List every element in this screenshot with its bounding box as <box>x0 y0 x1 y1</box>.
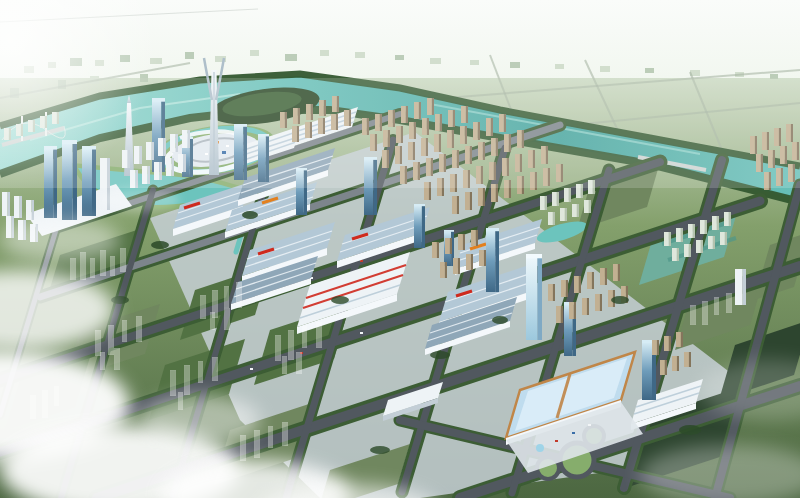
distant-building <box>285 54 297 61</box>
distant-building <box>470 60 479 65</box>
trees <box>111 296 129 304</box>
car <box>250 368 253 370</box>
distant-building <box>355 52 365 58</box>
residential-slab <box>664 336 671 351</box>
distant-building <box>320 50 329 56</box>
forecourt-detail <box>588 424 591 426</box>
ghost-building <box>726 293 732 313</box>
ghost-building <box>288 330 294 360</box>
forecourt-detail <box>572 432 575 434</box>
residential-slab <box>556 306 563 323</box>
distant-building <box>250 50 259 56</box>
rendering-canvas: Aerial master-plan rendering of a rivers… <box>0 0 800 498</box>
pale-slab <box>552 192 559 206</box>
distant-building <box>645 68 654 73</box>
residential-slab <box>445 238 452 254</box>
pale-slab <box>572 204 579 217</box>
distant-building <box>185 52 194 59</box>
pale-slab <box>724 212 731 226</box>
trees <box>611 296 629 304</box>
ghost-building <box>114 348 120 370</box>
residential-slab <box>660 360 667 375</box>
residential-slab <box>684 352 691 367</box>
ghost-building <box>200 295 206 319</box>
ghost-building <box>136 316 142 342</box>
ghost-building <box>122 320 127 342</box>
residential-slab <box>676 332 683 347</box>
ghost-building <box>282 422 288 446</box>
white-slab <box>14 196 22 218</box>
car <box>360 332 363 334</box>
residential-slab <box>672 356 679 371</box>
trees <box>242 211 258 219</box>
residential-slab <box>466 254 473 270</box>
pale-slab <box>560 208 567 221</box>
ghost-building <box>90 258 95 278</box>
residential-slab <box>587 272 594 289</box>
ghost-building <box>198 361 203 383</box>
residential-slab <box>432 242 439 258</box>
ghost-building <box>236 282 242 308</box>
residential-slab <box>600 268 607 285</box>
residential-slab <box>479 250 486 266</box>
ghost-building <box>240 435 246 461</box>
pale-slab <box>684 244 691 257</box>
pale-slab <box>584 200 591 213</box>
residential-slab <box>652 340 659 355</box>
ghost-building <box>100 352 105 370</box>
ghost-building <box>108 325 114 355</box>
ghost-building <box>224 286 229 308</box>
distant-building <box>555 64 564 69</box>
residential-slab <box>478 188 485 206</box>
pale-slab <box>540 196 547 210</box>
fountain <box>536 444 544 452</box>
pale-slab <box>700 220 707 234</box>
ghost-building <box>714 297 719 315</box>
residential-slab <box>595 294 602 311</box>
car <box>360 260 363 262</box>
cloud <box>140 395 260 445</box>
ghost-building <box>702 301 708 325</box>
residential-slab <box>440 262 447 278</box>
trees <box>151 241 169 249</box>
residential-slab <box>452 196 459 214</box>
trees <box>370 446 390 454</box>
pale-slab <box>664 232 671 246</box>
ghost-building <box>170 370 176 396</box>
ghost-building <box>120 248 126 272</box>
cloud-wisp <box>100 188 180 212</box>
residential-slab <box>471 230 478 246</box>
ghost-building <box>302 326 307 348</box>
ghost-building <box>212 357 218 381</box>
residential-slab <box>574 276 581 293</box>
ghost-building <box>210 312 215 330</box>
pale-slab <box>708 236 715 249</box>
ghost-building <box>690 305 696 325</box>
ghost-building <box>316 322 322 348</box>
residential-slab <box>582 298 589 315</box>
ghost-building <box>282 356 287 374</box>
white-tower <box>735 269 746 305</box>
faceted-glass-tower <box>526 254 542 340</box>
ghost-building <box>184 365 190 395</box>
pale-slab <box>712 216 719 230</box>
aerial-rendering: Aerial master-plan rendering of a rivers… <box>0 0 800 498</box>
pale-slab <box>720 232 727 245</box>
pale-slab <box>564 188 571 202</box>
residential-slab <box>453 258 460 274</box>
ghost-building <box>296 352 302 374</box>
distant-building <box>395 55 404 60</box>
residential-slab <box>569 302 576 319</box>
ghost-building <box>224 308 230 330</box>
distant-building <box>510 62 520 68</box>
pale-slab <box>548 212 555 225</box>
ghost-building <box>268 426 273 448</box>
ghost-building <box>110 256 115 276</box>
trees <box>331 296 349 304</box>
residential-slab <box>458 234 465 250</box>
distant-building <box>600 66 610 72</box>
residential-slab <box>548 284 555 301</box>
residential-slab <box>613 264 620 281</box>
pale-slab <box>676 228 683 242</box>
pale-slab <box>696 240 703 253</box>
pale-slab <box>672 248 679 261</box>
trees <box>430 351 450 359</box>
pale-slab <box>688 224 695 238</box>
ghost-building <box>254 430 260 458</box>
trees <box>492 316 508 324</box>
ghost-building <box>275 335 281 361</box>
glass-tower <box>414 204 425 248</box>
residential-slab <box>561 280 568 297</box>
distant-building <box>430 58 441 64</box>
trees <box>679 425 701 435</box>
glass-tower <box>486 228 499 292</box>
forecourt-detail <box>555 440 558 442</box>
cloud <box>0 218 120 262</box>
residential-slab <box>465 192 472 210</box>
white-slab <box>26 200 34 220</box>
white-slab <box>2 192 10 216</box>
